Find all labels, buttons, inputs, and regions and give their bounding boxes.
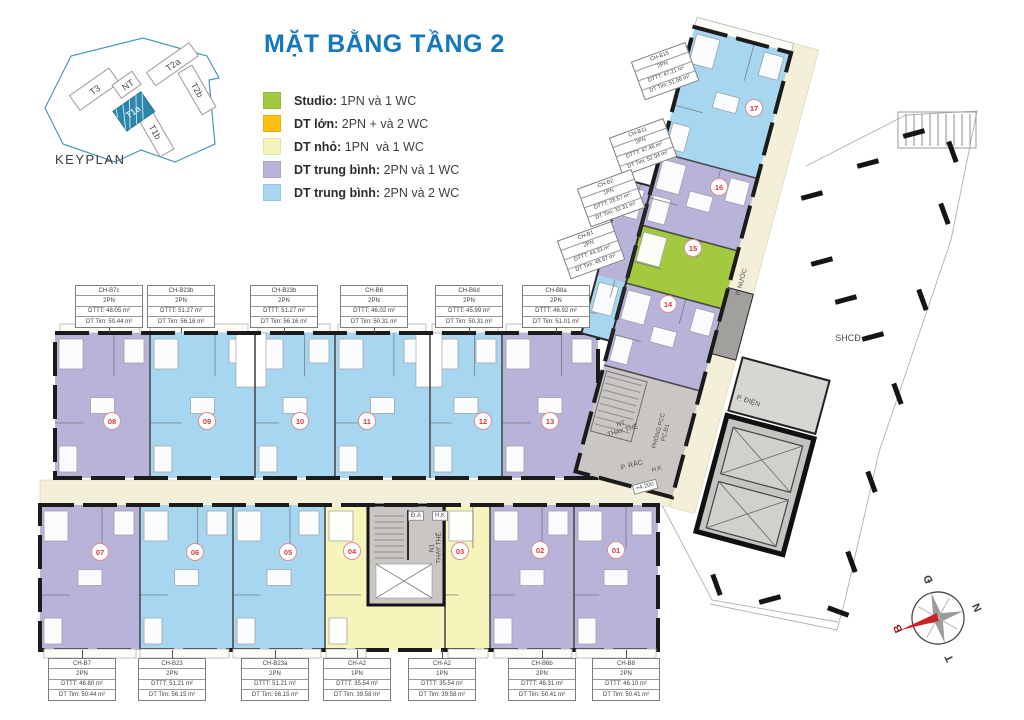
legend-type-name: DT lớn: [294,117,338,131]
unit-info-dttim: DT Tim: 51.01 m² [523,316,589,326]
unit-info-label: CH-B112PNDTTT: 47.46 m²DT Tim: 52.04 m² [609,118,677,176]
unit-info-type: 2PN [242,668,308,678]
unit-info-dttt: DTTT: 45.99 m² [436,306,502,316]
floorplan-page: MẶT BẰNG TẦNG 2 Studio: 1PN và 1 WC DT l… [0,0,1024,720]
unit-info-dttt: DTTT: 46.10 m² [593,679,659,689]
room-annotation: +4.200 [632,479,658,495]
unit-info-dttt: DTTT: 46.80 m² [49,679,115,689]
compass-letter-tay: T [943,652,957,663]
unit-number-badge: 10 [291,412,309,430]
unit-info-dttim: DT Tim: 50.31 m² [436,316,502,326]
unit-info-dttim: DT Tim: 50.31 m² [341,316,407,326]
unit-info-name: CH-B23 [139,659,205,668]
legend-type-desc: 1PN và 1 WC [341,140,424,154]
unit-info-name: CH-B23b [148,286,214,295]
compass-letter-nam: N [970,601,984,613]
unit-info-label: CH-B12PNDTTT: 44.33 m²DT Tim: 48.67 m² [557,221,625,279]
unit-info-type: 2PN [593,668,659,678]
unit-info-dttt: DTTT: 46.02 m² [341,306,407,316]
label-leader-line [357,650,358,658]
legend-color-swatch [263,184,281,201]
unit-number-badge: 14 [659,295,677,313]
legend-type-desc: 2PN và 1 WC [380,163,459,177]
room-annotation: SHCĐ [835,333,861,343]
unit-info-type: 2PN [523,295,589,305]
legend-type-desc: 2PN và 2 WC [380,186,459,200]
unit-info-label: CH-B7c2PNDTTT: 48.05 m²DT Tim: 50.44 m² [75,285,143,328]
unit-info-label: CH-B23b2PNDTTT: 51.27 m²DT Tim: 56.16 m² [250,285,318,328]
unit-info-label: CH-B62PNDTTT: 46.02 m²DT Tim: 50.31 m² [340,285,408,328]
unit-number-badge: 01 [607,541,625,559]
legend-type-name: DT nhỏ: [294,140,341,154]
legend-type-name: Studio: [294,94,337,108]
unit-info-type: 2PN [341,295,407,305]
unit-info-type: 2PN [49,668,115,678]
unit-info-name: CH-A2 [409,659,475,668]
unit-number-badge: 13 [541,412,559,430]
room-annotation: P. ĐIỆN [735,394,761,409]
unit-info-label: CH-B6b2PNDTTT: 46.31 m²DT Tim: 50.41 m² [508,658,576,701]
unit-info-dttt: DTTT: 51.27 m² [148,306,214,316]
unit-info-label: CH-B23a2PNDTTT: 51.21 m²DT Tim: 56.15 m² [241,658,309,701]
unit-info-dttim: DT Tim: 50.44 m² [76,316,142,326]
unit-info-dttim: DT Tim: 39.58 m² [409,689,475,699]
legend: Studio: 1PN và 1 WC DT lớn: 2PN + và 2 W… [263,92,459,207]
unit-number-badge: 06 [186,543,204,561]
unit-info-dttt: DTTT: 48.05 m² [76,306,142,316]
legend-row: DT trung bình: 2PN và 2 WC [263,184,459,201]
unit-number-badge: 05 [279,543,297,561]
unit-info-label: CH-B232PNDTTT: 51.21 m²DT Tim: 56.15 m² [138,658,206,701]
room-annotation: H.K [651,465,662,474]
unit-info-dttim: DT Tim: 50.41 m² [593,689,659,699]
unit-info-label: CH-B72PNDTTT: 46.80 m²DT Tim: 50.44 m² [48,658,116,701]
unit-number-badge: 16 [710,178,728,196]
keyplan-caption: KEYPLAN [55,152,125,167]
legend-row: Studio: 1PN và 1 WC [263,92,459,109]
legend-color-swatch [263,115,281,132]
unit-info-dttim: DT Tim: 50.41 m² [509,689,575,699]
label-leader-line [172,650,173,658]
unit-info-type: 2PN [509,668,575,678]
room-annotation: PHÒNG PCC PC.Đ1 [652,413,675,452]
room-annotation: Đ.A [408,511,424,521]
room-annotation: H.K [432,511,448,521]
unit-info-type: 2PN [76,295,142,305]
legend-type-name: DT trung bình: [294,186,380,200]
unit-info-type: 1PN [324,668,390,678]
unit-number-badge: 02 [531,541,549,559]
legend-color-swatch [263,92,281,109]
label-leader-line [626,650,627,658]
unit-info-label: CH-A21PNDTTT: 35.54 m²DT Tim: 39.58 m² [408,658,476,701]
unit-info-type: 1PN [409,668,475,678]
unit-number-badge: 12 [474,412,492,430]
legend-type-desc: 1PN và 1 WC [337,94,416,108]
unit-info-label: CH-B152PNDTTT: 47.21 m²DT Tim: 51.66 m² [631,42,699,100]
legend-color-swatch [263,161,281,178]
unit-number-badge: 04 [343,542,361,560]
label-leader-line [442,650,443,658]
legend-type-desc: 2PN + và 2 WC [338,117,428,131]
label-leader-line [542,650,543,658]
unit-info-dttim: DT Tim: 56.16 m² [148,316,214,326]
unit-info-dttt: DTTT: 51.21 m² [242,679,308,689]
unit-info-dttim: DT Tim: 56.16 m² [251,316,317,326]
unit-info-dttt: DTTT: 51.21 m² [139,679,205,689]
unit-info-dttt: DTTT: 46.92 m² [523,306,589,316]
unit-info-name: CH-B8 [593,659,659,668]
unit-info-name: CH-B8a [523,286,589,295]
room-annotation: P. NƯỚC [735,268,749,297]
room-annotation: P. RÁC [620,459,644,473]
unit-number-badge: 09 [198,412,216,430]
unit-info-label: CH-B6d2PNDTTT: 45.99 m²DT Tim: 50.31 m² [435,285,503,328]
legend-color-swatch [263,138,281,155]
legend-row: DT trung bình: 2PN và 1 WC [263,161,459,178]
unit-info-dttim: DT Tim: 56.15 m² [242,689,308,699]
unit-info-dttim: DT Tim: 50.44 m² [49,689,115,699]
unit-number-badge: 07 [91,543,109,561]
legend-row: DT lớn: 2PN + và 2 WC [263,115,459,132]
unit-info-label: CH-B82PNDTTT: 46.10 m²DT Tim: 50.41 m² [592,658,660,701]
unit-info-dttt: DTTT: 35.54 m² [409,679,475,689]
unit-number-badge: 03 [451,542,469,560]
unit-info-name: CH-A2 [324,659,390,668]
compass-drawing: Đ N T B [880,560,996,676]
unit-info-type: 2PN [139,668,205,678]
unit-info-dttt: DTTT: 51.27 m² [251,306,317,316]
unit-number-badge: 17 [745,99,763,117]
unit-info-name: CH-B23b [251,286,317,295]
room-annotation: NT THAY THẾ [605,417,639,440]
unit-info-dttt: DTTT: 35.54 m² [324,679,390,689]
compass-letter-dong: Đ [921,573,935,585]
legend-type-name: DT trung bình: [294,163,380,177]
unit-info-dttt: DTTT: 46.31 m² [509,679,575,689]
unit-info-label: CH-A21PNDTTT: 35.54 m²DT Tim: 39.58 m² [323,658,391,701]
unit-number-badge: 08 [103,412,121,430]
page-title: MẶT BẰNG TẦNG 2 [264,30,505,59]
unit-info-type: 2PN [148,295,214,305]
unit-info-name: CH-B7c [76,286,142,295]
unit-info-name: CH-B23a [242,659,308,668]
unit-number-badge: 15 [684,239,702,257]
unit-info-name: CH-B6d [436,286,502,295]
unit-info-dttim: DT Tim: 56.15 m² [139,689,205,699]
unit-info-dttim: DT Tim: 39.58 m² [324,689,390,699]
label-leader-line [275,650,276,658]
compass-rose: Đ N T B [880,560,996,681]
unit-info-name: CH-B6b [509,659,575,668]
label-leader-line [82,650,83,658]
unit-info-type: 2PN [251,295,317,305]
unit-number-badge: 11 [358,412,376,430]
legend-row: DT nhỏ: 1PN và 1 WC [263,138,459,155]
unit-info-type: 2PN [436,295,502,305]
unit-info-label: CH-B21PNDTTT: 28.57 m²DT Tim: 32.31 m² [577,169,645,227]
unit-info-label: CH-B23b2PNDTTT: 51.27 m²DT Tim: 56.16 m² [147,285,215,328]
unit-info-label: CH-B8a2PNDTTT: 46.92 m²DT Tim: 51.01 m² [522,285,590,328]
unit-info-name: CH-B7 [49,659,115,668]
room-annotation: N1 THAY THẾ [429,532,444,563]
unit-info-name: CH-B6 [341,286,407,295]
compass-letter-bac: B [891,622,905,634]
